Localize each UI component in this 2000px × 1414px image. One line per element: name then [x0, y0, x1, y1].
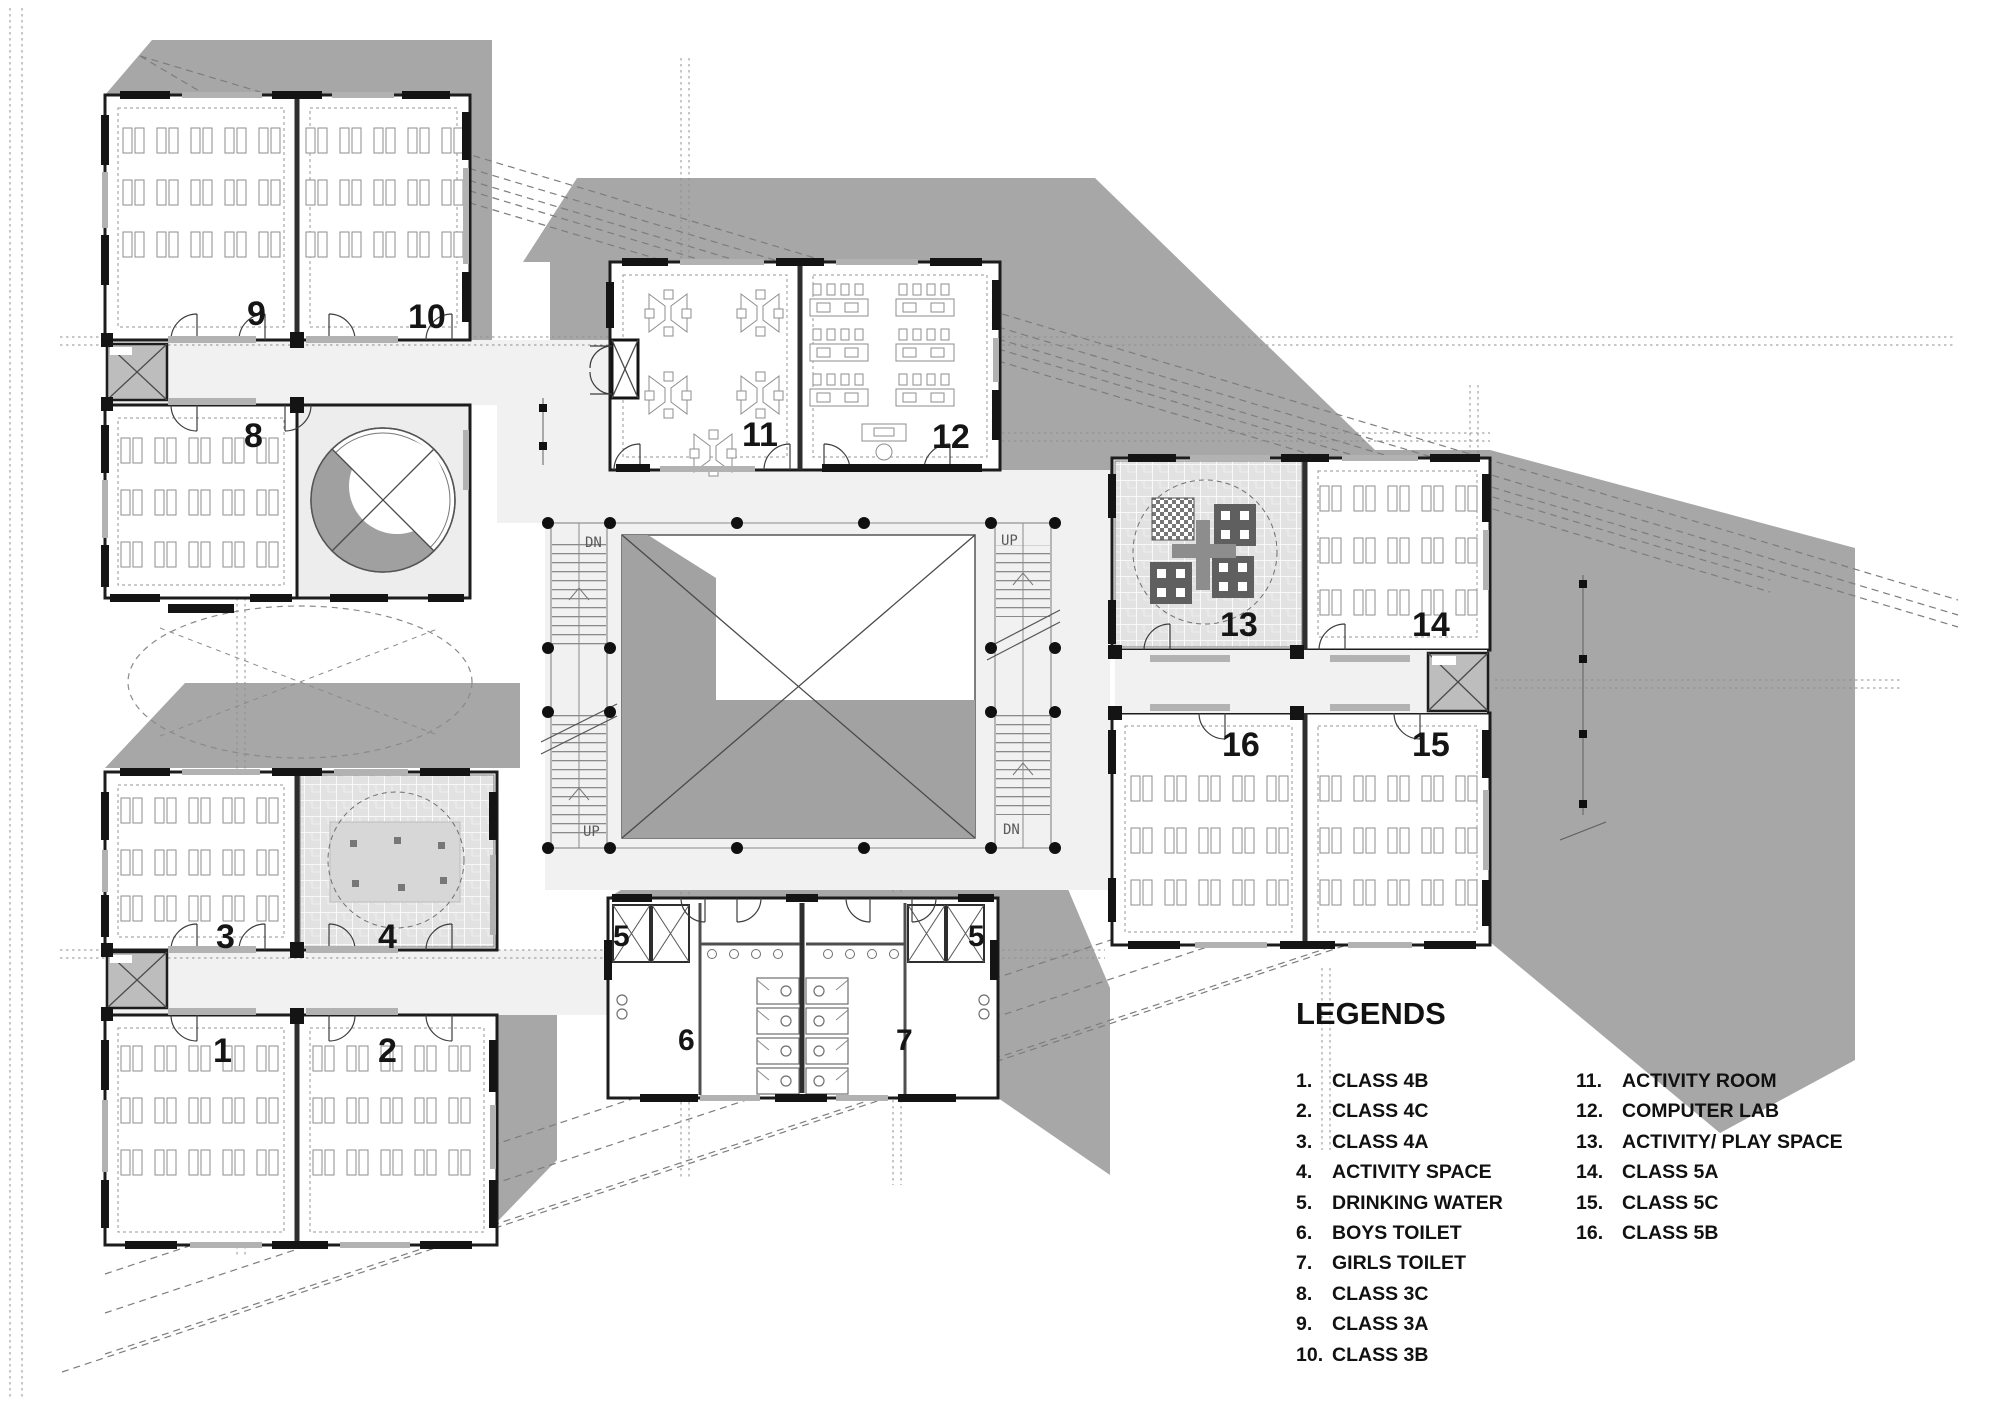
legend-num: 12.: [1576, 1100, 1622, 1123]
legend-label: COMPUTER LAB: [1622, 1100, 1779, 1123]
legend-item: 16.CLASS 5B: [1576, 1222, 1976, 1252]
block-right: [1108, 454, 1490, 949]
legend-label: CLASS 4B: [1332, 1070, 1428, 1093]
block-toilets: [604, 894, 998, 1102]
legend-label: ACTIVITY ROOM: [1622, 1070, 1777, 1093]
stair-label-right-top: UP: [1001, 533, 1018, 549]
legend-item: 10.CLASS 3B: [1296, 1344, 1558, 1374]
legend-label: DRINKING WATER: [1332, 1192, 1503, 1215]
legend-item: 13.ACTIVITY/ PLAY SPACE: [1576, 1131, 1976, 1161]
legend-item: 7.GIRLS TOILET: [1296, 1252, 1558, 1282]
legend-label: ACTIVITY/ PLAY SPACE: [1622, 1131, 1843, 1154]
room-4-activity-space: [300, 775, 494, 947]
legend-item: 12.COMPUTER LAB: [1576, 1100, 1976, 1130]
room-label-13: 13: [1220, 606, 1258, 644]
legend-item: 3.CLASS 4A: [1296, 1131, 1558, 1161]
legend-item: 1.CLASS 4B: [1296, 1070, 1558, 1100]
legend-num: 5.: [1296, 1192, 1332, 1215]
legend-num: 16.: [1576, 1222, 1622, 1245]
legend-title: LEGENDS: [1296, 996, 1986, 1032]
legend-label: CLASS 5B: [1622, 1222, 1718, 1245]
room-label-4: 4: [378, 918, 397, 956]
legend-item: 6.BOYS TOILET: [1296, 1222, 1558, 1252]
legend-num: 6.: [1296, 1222, 1332, 1245]
legend-num: 7.: [1296, 1252, 1332, 1275]
legend-num: 10.: [1296, 1344, 1332, 1367]
legend-item: 2.CLASS 4C: [1296, 1100, 1558, 1130]
circular-void: [311, 428, 455, 572]
room-label-3: 3: [216, 918, 235, 956]
room-label-8: 8: [244, 417, 263, 455]
legend-num: 8.: [1296, 1283, 1332, 1306]
room-label-14: 14: [1412, 606, 1450, 644]
legend-label: CLASS 4A: [1332, 1131, 1428, 1154]
legend-num: 15.: [1576, 1192, 1622, 1215]
room-label-5-right: 5: [968, 920, 985, 953]
room-label-2: 2: [378, 1032, 397, 1070]
legend-num: 4.: [1296, 1161, 1332, 1184]
floor-plan-sheet: DN UP UP DN: [0, 0, 2000, 1414]
legend-item: 11.ACTIVITY ROOM: [1576, 1070, 1976, 1100]
legend: LEGENDS 1.CLASS 4B 2.CLASS 4C 3.CLASS 4A…: [1296, 996, 1986, 1374]
legend-num: 1.: [1296, 1070, 1332, 1093]
legend-label: CLASS 5A: [1622, 1161, 1718, 1184]
stair-label-left-top: DN: [585, 535, 602, 551]
room-label-12: 12: [932, 418, 970, 456]
legend-label: CLASS 4C: [1332, 1100, 1428, 1123]
legend-item: 14.CLASS 5A: [1576, 1161, 1976, 1191]
legend-item: 8.CLASS 3C: [1296, 1283, 1558, 1313]
room-label-15: 15: [1412, 726, 1450, 764]
legend-item: 4.ACTIVITY SPACE: [1296, 1161, 1558, 1191]
room-13-play-space: [1115, 461, 1302, 647]
room-label-9: 9: [247, 295, 266, 333]
legend-num: 3.: [1296, 1131, 1332, 1154]
room-label-6: 6: [678, 1024, 695, 1057]
legend-label: ACTIVITY SPACE: [1332, 1161, 1492, 1184]
legend-label: BOYS TOILET: [1332, 1222, 1462, 1245]
room-label-16: 16: [1222, 726, 1260, 764]
legend-num: 13.: [1576, 1131, 1622, 1154]
legend-column-2: 11.ACTIVITY ROOM 12.COMPUTER LAB 13.ACTI…: [1576, 1070, 1976, 1374]
legend-label: GIRLS TOILET: [1332, 1252, 1466, 1275]
legend-num: 11.: [1576, 1070, 1622, 1093]
room-label-11: 11: [742, 416, 778, 454]
room-label-1: 1: [213, 1032, 232, 1070]
legend-item: 9.CLASS 3A: [1296, 1313, 1558, 1343]
legend-num: 9.: [1296, 1313, 1332, 1336]
legend-label: CLASS 3C: [1332, 1283, 1428, 1306]
legend-label: CLASS 3A: [1332, 1313, 1428, 1336]
stair-label-left-bottom: UP: [583, 824, 600, 840]
legend-item: 5.DRINKING WATER: [1296, 1192, 1558, 1222]
stair-label-right-bottom: DN: [1003, 822, 1020, 838]
legend-item: 15.CLASS 5C: [1576, 1192, 1976, 1222]
legend-column-1: 1.CLASS 4B 2.CLASS 4C 3.CLASS 4A 4.ACTIV…: [1296, 1070, 1558, 1374]
legend-label: CLASS 5C: [1622, 1192, 1718, 1215]
room-label-7: 7: [896, 1024, 913, 1057]
legend-num: 14.: [1576, 1161, 1622, 1184]
room-label-5-left: 5: [613, 920, 630, 953]
legend-label: CLASS 3B: [1332, 1344, 1428, 1367]
room-label-10: 10: [408, 298, 446, 336]
legend-num: 2.: [1296, 1100, 1332, 1123]
